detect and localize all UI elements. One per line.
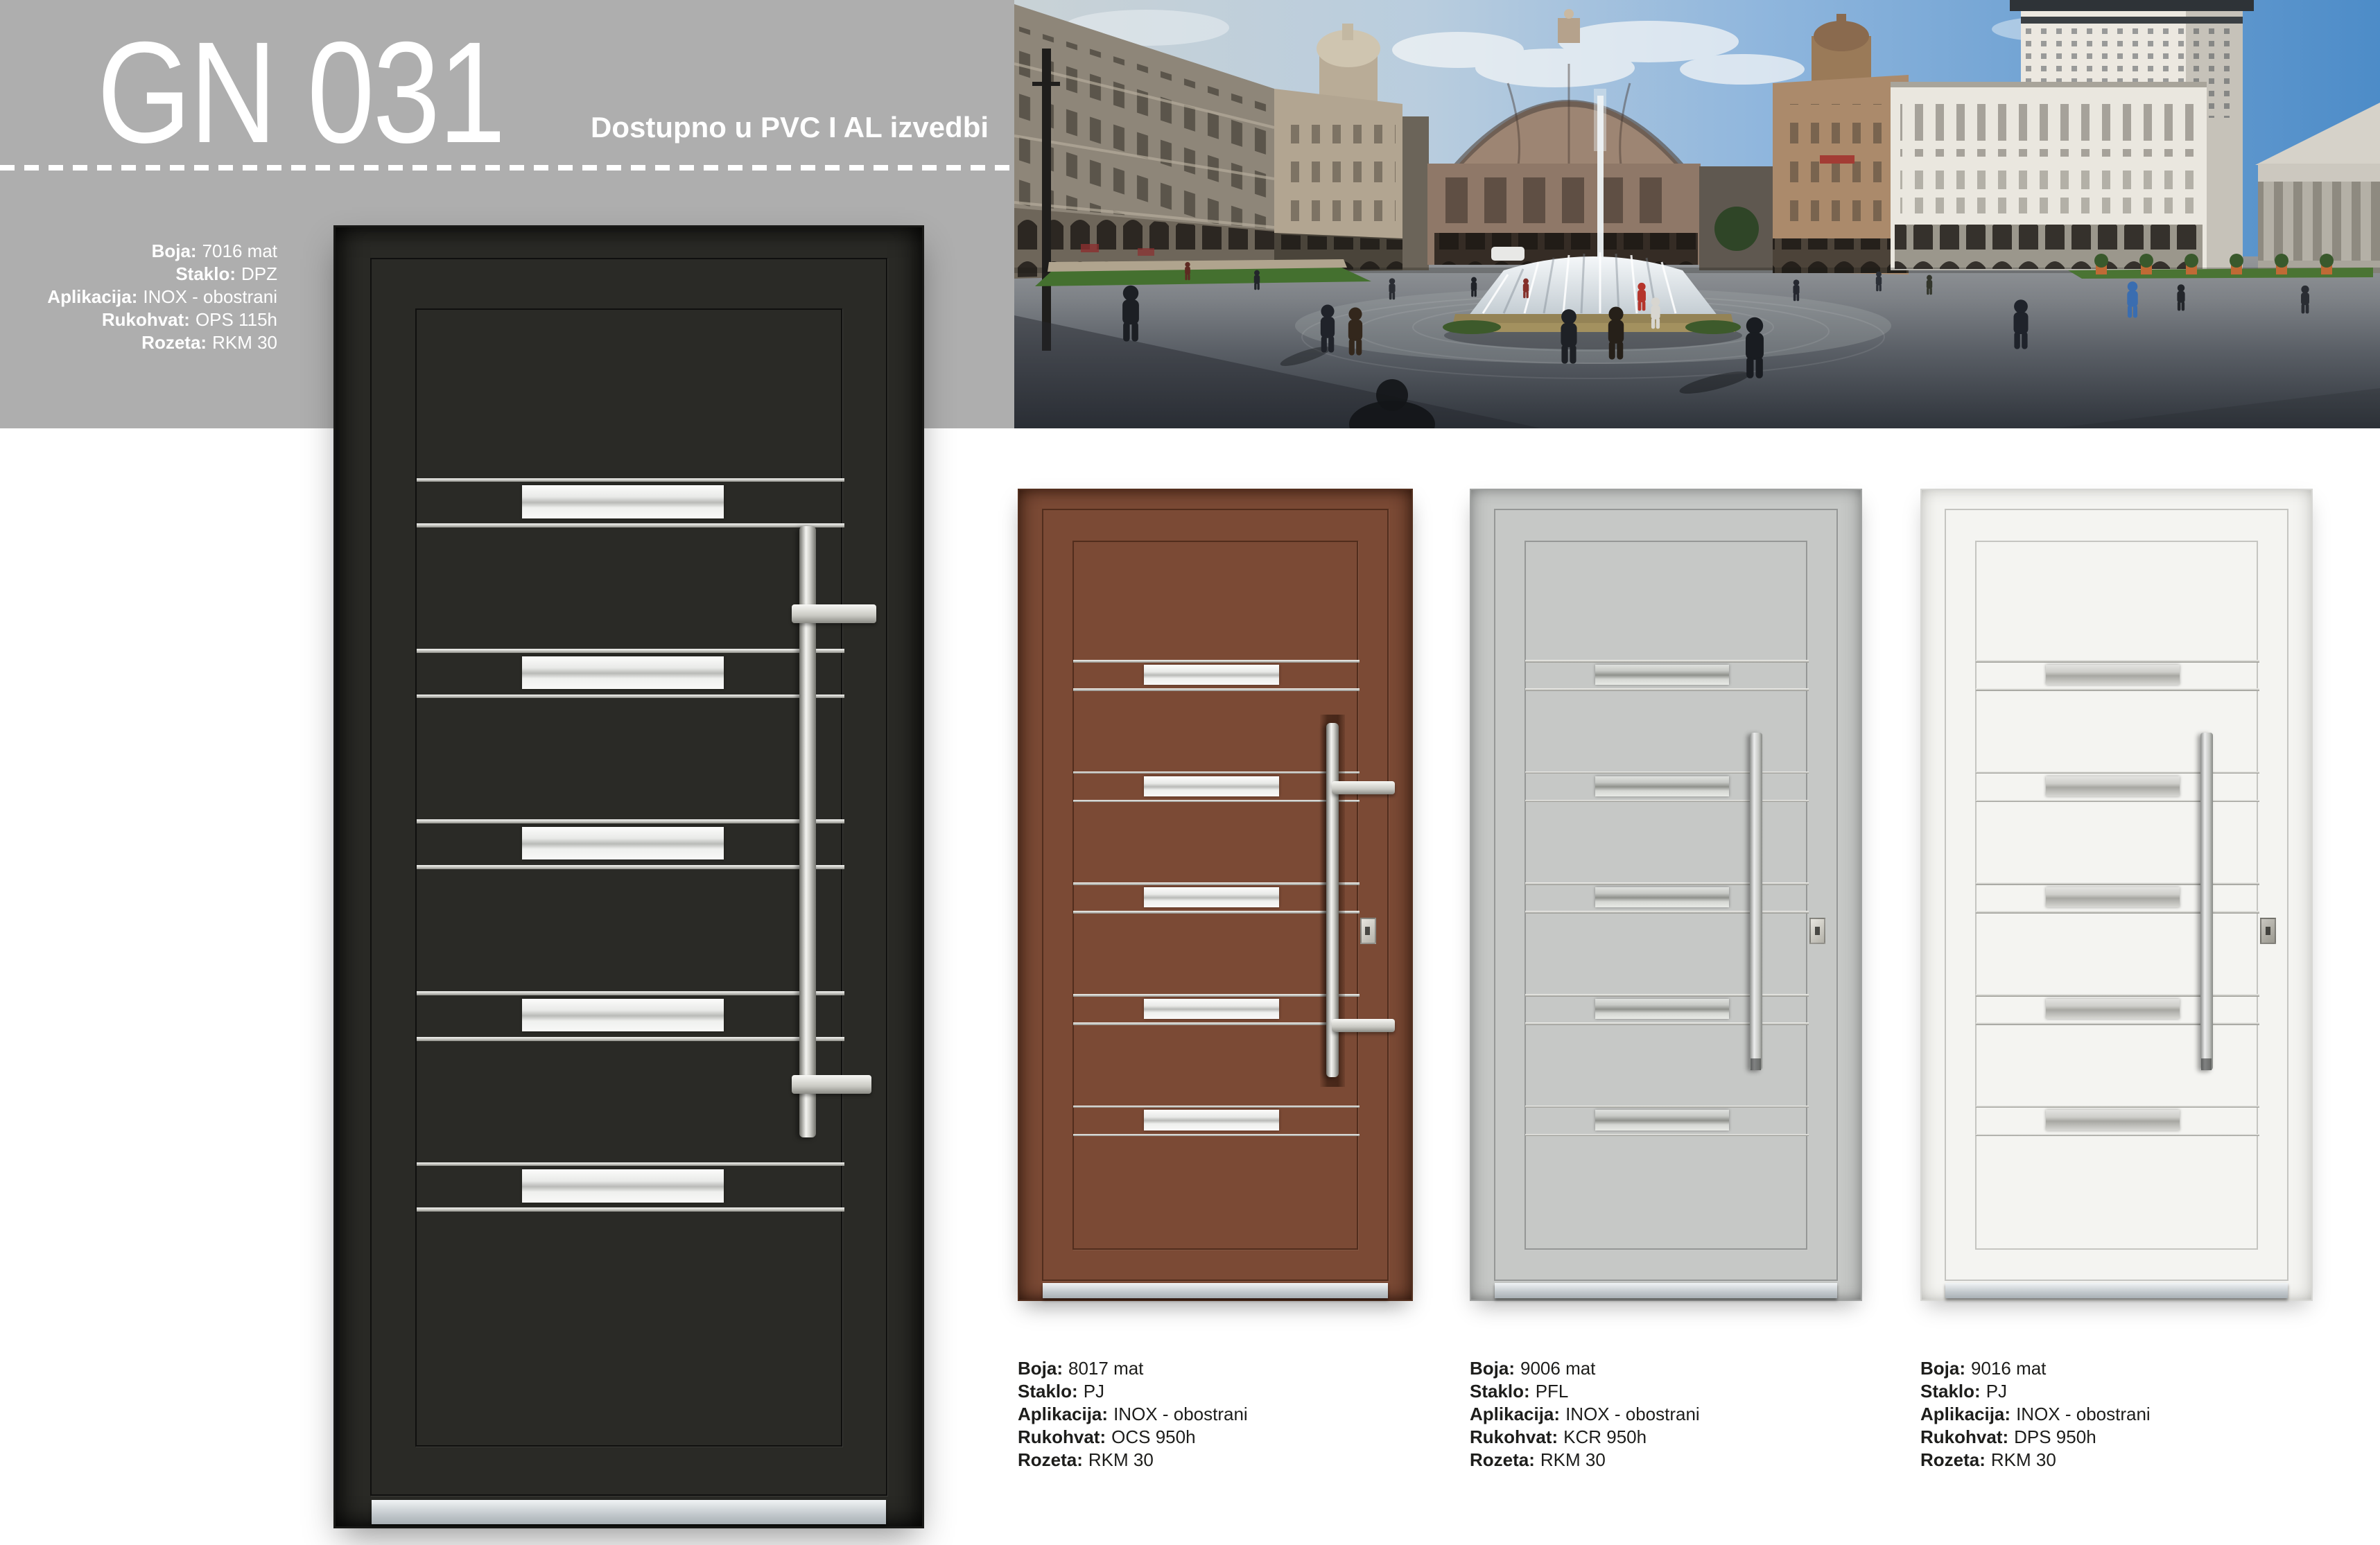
inox-line bbox=[1073, 771, 1360, 774]
spec-line: Staklo:DPZ bbox=[42, 263, 277, 286]
spec-line: Rozeta:RKM 30 bbox=[42, 331, 277, 354]
door-glass-stripe bbox=[417, 991, 844, 1040]
spec-line: Staklo:PJ bbox=[1018, 1380, 1316, 1403]
spec-value: 7016 mat bbox=[202, 241, 277, 261]
inox-line bbox=[1525, 688, 1809, 691]
door-glass-stripe bbox=[1073, 994, 1360, 1025]
spec-label: Staklo: bbox=[1470, 1381, 1530, 1402]
spec-line: Rukohvat:KCR 950h bbox=[1470, 1426, 1768, 1449]
inox-line bbox=[417, 1207, 844, 1212]
glass-insert bbox=[1144, 887, 1279, 907]
spec-value: INOX - obostrani bbox=[2016, 1404, 2151, 1424]
spec-line: Aplikacija:INOX - obostrani bbox=[1920, 1403, 2218, 1426]
inox-line bbox=[417, 649, 844, 653]
spec-line: Rukohvat:OCS 950h bbox=[1018, 1426, 1316, 1449]
spec-label: Rozeta: bbox=[1018, 1449, 1083, 1470]
inox-line bbox=[1976, 688, 2260, 691]
spec-value: 8017 mat bbox=[1068, 1358, 1143, 1379]
inox-line bbox=[1073, 1106, 1360, 1108]
inox-line bbox=[417, 523, 844, 527]
glass-insert bbox=[1595, 1110, 1729, 1130]
glass-insert bbox=[522, 827, 724, 859]
door-glass-stripe bbox=[1073, 660, 1360, 691]
inox-line bbox=[1525, 911, 1809, 914]
door-glass-stripe bbox=[1525, 1106, 1809, 1137]
door-glass-stripe bbox=[1525, 660, 1809, 691]
spec-value: OCS 950h bbox=[1111, 1426, 1195, 1447]
glass-insert bbox=[522, 1169, 724, 1202]
spec-value: 9016 mat bbox=[1971, 1358, 2046, 1379]
spec-line: Staklo:PFL bbox=[1470, 1380, 1768, 1403]
door-handle-grip bbox=[792, 604, 876, 623]
door-glass-stripe bbox=[1976, 1106, 2260, 1137]
glass-insert bbox=[1144, 1110, 1279, 1130]
spec-value: PJ bbox=[1986, 1381, 2007, 1402]
inox-line bbox=[1976, 911, 2260, 914]
spec-label: Staklo: bbox=[1920, 1381, 1981, 1402]
glass-insert bbox=[1144, 776, 1279, 796]
main-door-image bbox=[333, 225, 924, 1528]
variant-door-8017 bbox=[1018, 489, 1413, 1301]
door-threshold bbox=[1043, 1283, 1387, 1298]
variant-specs-9006: Boja:9006 mat Staklo:PFL Aplikacija:INOX… bbox=[1470, 1357, 1768, 1472]
inox-line bbox=[417, 819, 844, 823]
door-handle-mount bbox=[792, 1075, 871, 1094]
photo-white-arcade-building bbox=[1891, 82, 2207, 270]
spec-line: Rukohvat:OPS 115h bbox=[42, 308, 277, 331]
spec-label: Rukohvat: bbox=[102, 309, 190, 330]
spec-line: Aplikacija:INOX - obostrani bbox=[1470, 1403, 1768, 1426]
inox-line bbox=[1525, 1134, 1809, 1137]
spec-line: Rukohvat:DPS 950h bbox=[1920, 1426, 2218, 1449]
inox-line bbox=[1976, 994, 2260, 997]
door-lock-rosette bbox=[1360, 918, 1376, 944]
variant-door-9016 bbox=[1920, 489, 2313, 1301]
spec-line: Aplikacija:INOX - obostrani bbox=[42, 286, 277, 308]
inox-line bbox=[1525, 660, 1809, 663]
door-handle-grip bbox=[1332, 781, 1395, 794]
spec-value: INOX - obostrani bbox=[1565, 1404, 1700, 1424]
page-title: GN 031 bbox=[97, 21, 504, 165]
inox-line bbox=[417, 991, 844, 995]
inox-line bbox=[417, 478, 844, 482]
door-lock-rosette bbox=[1809, 918, 1825, 944]
door-glass-stripe bbox=[1525, 771, 1809, 803]
door-glass-stripe bbox=[417, 1162, 844, 1212]
inox-line bbox=[1525, 882, 1809, 885]
inox-line bbox=[417, 695, 844, 699]
inox-line bbox=[1073, 800, 1360, 803]
spec-line: Rozeta:RKM 30 bbox=[1470, 1449, 1768, 1472]
inox-line bbox=[1525, 1106, 1809, 1108]
spec-value: DPS 950h bbox=[2014, 1426, 2096, 1447]
inox-line bbox=[1525, 771, 1809, 774]
spec-label: Staklo: bbox=[175, 263, 236, 284]
inox-line bbox=[1073, 882, 1360, 885]
inox-line bbox=[1525, 800, 1809, 803]
inox-line bbox=[1976, 800, 2260, 803]
glass-insert bbox=[1144, 999, 1279, 1019]
inox-line bbox=[1976, 882, 2260, 885]
spec-line: Boja:7016 mat bbox=[42, 240, 277, 263]
inox-line bbox=[1976, 771, 2260, 774]
main-door-specs: Boja:7016 mat Staklo:DPZ Aplikacija:INOX… bbox=[42, 240, 277, 354]
door-glass-stripe bbox=[417, 478, 844, 527]
page-subtitle: Dostupno u PVC I AL izvedbi bbox=[591, 111, 989, 144]
inox-line bbox=[1525, 1022, 1809, 1025]
door-glass-stripe bbox=[1073, 882, 1360, 914]
glass-insert bbox=[522, 485, 724, 518]
inox-line bbox=[1976, 1134, 2260, 1137]
door-glass-stripe bbox=[1073, 1106, 1360, 1137]
spec-line: Boja:9016 mat bbox=[1920, 1357, 2218, 1380]
inox-line bbox=[1073, 688, 1360, 691]
door-glass-stripe bbox=[1976, 660, 2260, 691]
spec-label: Rozeta: bbox=[141, 332, 207, 353]
glass-insert bbox=[1144, 665, 1279, 685]
inox-line bbox=[1976, 660, 2260, 663]
catalog-page: GN 031 Dostupno u PVC I AL izvedbi Boja:… bbox=[0, 0, 2380, 1545]
glass-insert bbox=[1595, 999, 1729, 1019]
variant-specs-8017: Boja:8017 mat Staklo:PJ Aplikacija:INOX … bbox=[1018, 1357, 1316, 1472]
door-handle-mount bbox=[1332, 1019, 1395, 1032]
inox-line bbox=[1073, 1134, 1360, 1137]
spec-label: Aplikacija: bbox=[1470, 1404, 1560, 1424]
inox-line bbox=[1073, 660, 1360, 663]
inox-line bbox=[1073, 1022, 1360, 1025]
spec-value: INOX - obostrani bbox=[143, 286, 277, 307]
door-threshold bbox=[1495, 1283, 1837, 1298]
spec-line: Rozeta:RKM 30 bbox=[1920, 1449, 2218, 1472]
spec-label: Boja: bbox=[1470, 1358, 1515, 1379]
spec-value: 9006 mat bbox=[1520, 1358, 1595, 1379]
door-glass-stripe bbox=[1525, 882, 1809, 914]
spec-label: Rukohvat: bbox=[1018, 1426, 1106, 1447]
spec-value: RKM 30 bbox=[1991, 1449, 2056, 1470]
door-glass-stripe bbox=[1976, 994, 2260, 1025]
glass-insert bbox=[522, 999, 724, 1031]
glass-insert bbox=[1595, 776, 1729, 796]
inox-line bbox=[1525, 994, 1809, 997]
spec-value: PJ bbox=[1084, 1381, 1104, 1402]
glass-insert bbox=[2046, 999, 2180, 1019]
spec-line: Aplikacija:INOX - obostrani bbox=[1018, 1403, 1316, 1426]
spec-label: Aplikacija: bbox=[1920, 1404, 2010, 1424]
glass-insert bbox=[2046, 1110, 2180, 1130]
spec-value: RKM 30 bbox=[212, 332, 277, 353]
inox-line bbox=[417, 1037, 844, 1041]
spec-line: Staklo:PJ bbox=[1920, 1380, 2218, 1403]
spec-label: Rukohvat: bbox=[1470, 1426, 1558, 1447]
inox-line bbox=[1976, 1022, 2260, 1025]
spec-line: Boja:8017 mat bbox=[1018, 1357, 1316, 1380]
spec-label: Aplikacija: bbox=[1018, 1404, 1108, 1424]
spec-line: Boja:9006 mat bbox=[1470, 1357, 1768, 1380]
spec-label: Staklo: bbox=[1018, 1381, 1078, 1402]
glass-insert bbox=[1595, 665, 1729, 685]
spec-value: INOX - obostrani bbox=[1113, 1404, 1248, 1424]
spec-line: Rozeta:RKM 30 bbox=[1018, 1449, 1316, 1472]
dashed-divider bbox=[0, 165, 1014, 171]
door-glass-stripe bbox=[1073, 771, 1360, 803]
door-glass-stripe bbox=[1976, 771, 2260, 803]
door-handle-bar bbox=[1750, 733, 1762, 1071]
spec-label: Rozeta: bbox=[1920, 1449, 1986, 1470]
spec-label: Aplikacija: bbox=[47, 286, 137, 307]
inox-line bbox=[1976, 1106, 2260, 1108]
glass-insert bbox=[522, 656, 724, 689]
door-threshold bbox=[1945, 1283, 2288, 1298]
glass-insert bbox=[2046, 887, 2180, 907]
door-lock-rosette bbox=[2260, 918, 2276, 944]
spec-value: DPZ bbox=[241, 263, 277, 284]
spec-value: RKM 30 bbox=[1088, 1449, 1154, 1470]
door-threshold bbox=[372, 1500, 887, 1525]
door-handle-bar bbox=[2200, 733, 2213, 1071]
spec-value: PFL bbox=[1536, 1381, 1569, 1402]
spec-label: Boja: bbox=[152, 241, 197, 261]
plaza-photo bbox=[1014, 0, 2380, 428]
spec-value: KCR 950h bbox=[1563, 1426, 1647, 1447]
spec-label: Rukohvat: bbox=[1920, 1426, 2008, 1447]
spec-value: OPS 115h bbox=[196, 309, 277, 330]
door-glass-stripe bbox=[1976, 882, 2260, 914]
glass-insert bbox=[2046, 665, 2180, 685]
spec-label: Boja: bbox=[1920, 1358, 1965, 1379]
inox-line bbox=[417, 865, 844, 869]
spec-label: Boja: bbox=[1018, 1358, 1063, 1379]
glass-insert bbox=[1595, 887, 1729, 907]
spec-value: RKM 30 bbox=[1540, 1449, 1606, 1470]
variant-specs-9016: Boja:9016 mat Staklo:PJ Aplikacija:INOX … bbox=[1920, 1357, 2218, 1472]
spec-label: Rozeta: bbox=[1470, 1449, 1535, 1470]
glass-insert bbox=[2046, 776, 2180, 796]
variant-door-9006 bbox=[1470, 489, 1862, 1301]
inox-line bbox=[1073, 994, 1360, 997]
door-glass-stripe bbox=[417, 819, 844, 868]
inox-line bbox=[417, 1162, 844, 1167]
door-glass-stripe bbox=[1525, 994, 1809, 1025]
inox-line bbox=[1073, 911, 1360, 914]
door-glass-stripe bbox=[417, 649, 844, 698]
